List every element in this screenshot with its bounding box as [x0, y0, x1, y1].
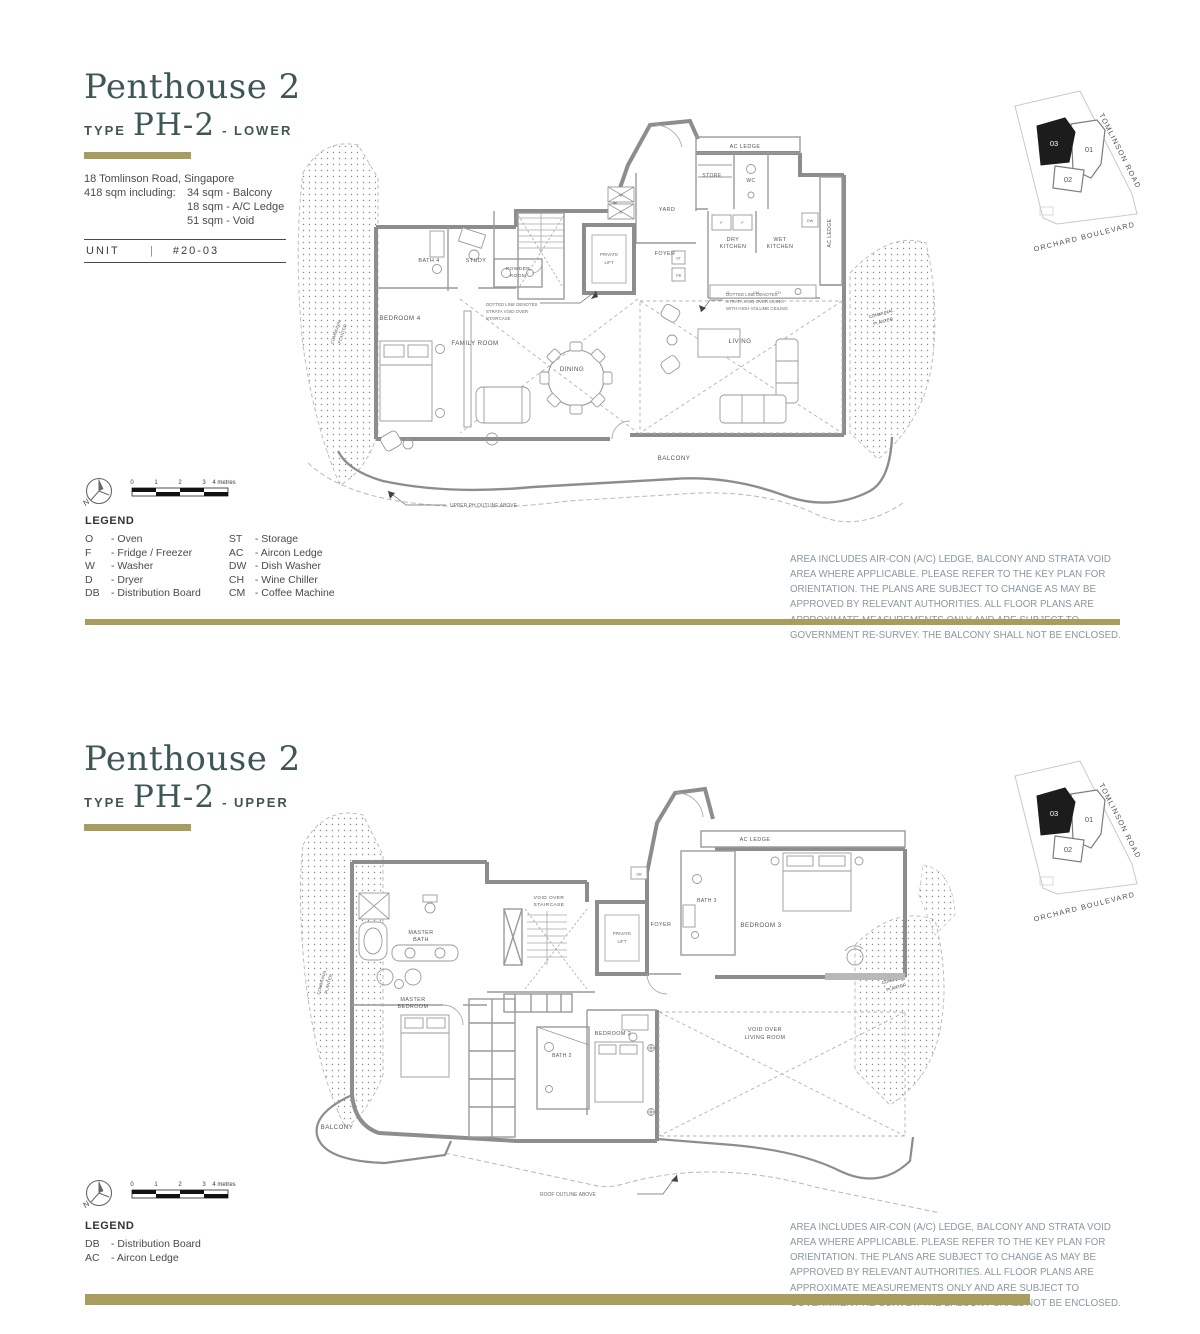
floor-plan-lower: COMMUNAL PLANTER COMMUNAL PLANTER [278, 103, 946, 551]
note-void-staircase: DOTTED LINE DENOTES [486, 302, 538, 307]
room-label-bath4: BATH 4 [418, 258, 439, 264]
legend-abbr: D [85, 574, 111, 588]
area-items: 34 sqm - Balcony 18 sqm - A/C Ledge 51 s… [187, 186, 284, 228]
room-label-bedroom3: BEDROOM 3 [740, 922, 781, 929]
note-void-staircase: STRATA VOID OVER [486, 309, 528, 314]
key-plan-upper: 01 02 03 TOMLINSON ROAD ORCHARD BOULEVAR… [985, 736, 1180, 931]
upper-ph-outline-dashed [308, 463, 903, 522]
scale-tick: 0 [130, 1182, 134, 1188]
room-label-store: STORE [702, 173, 722, 179]
type-row: TYPE PH-2 - LOWER [84, 107, 301, 143]
legend-abbr: CM [229, 587, 255, 601]
scale-tick: 3 [202, 480, 206, 486]
section-divider [85, 619, 1120, 625]
room-label-foyer: FOYER [655, 251, 676, 257]
legend-desc: - Coffee Machine [255, 587, 335, 601]
legend-desc: - Aircon Ledge [255, 547, 323, 561]
floor-plan-upper: COMMUNAL PLANTER COMMUNAL PLANTER [295, 775, 963, 1223]
room-label-balcony: BALCONY [321, 1124, 354, 1131]
unit-02-label: 02 [1064, 175, 1072, 184]
distribution-board-label: DB [636, 873, 642, 877]
legend-col-2: ST- Storage AC- Aircon Ledge DW- Dish Wa… [229, 533, 335, 601]
dryer-label: D [620, 211, 623, 215]
legend-desc: - Dryer [111, 574, 143, 588]
room-label-master-bedroom: MASTER [400, 997, 425, 1003]
room-label-void-living: VOID OVER [748, 1027, 782, 1033]
room-label-study: STUDY [466, 258, 487, 264]
legend-abbr: CH [229, 574, 255, 588]
scale-tick: 3 [202, 1182, 206, 1188]
room-label-void-living: LIVING ROOM [745, 1035, 786, 1041]
legend-upper: LEGEND DB- Distribution Board AC- Aircon… [85, 1220, 201, 1265]
page-title: Penthouse 2 [84, 70, 301, 106]
disclaimer-lower: AREA INCLUDES AIR-CON (A/C) LEDGE, BALCO… [790, 552, 1128, 643]
road-label-orchard: ORCHARD BOULEVARD [1033, 220, 1136, 254]
scale-bar: 0 1 2 3 4 metres [130, 480, 235, 496]
legend-desc: - Storage [255, 533, 298, 547]
scale-tick: 1 [154, 1182, 158, 1188]
type-row: TYPE PH-2 - UPPER [84, 779, 301, 815]
private-lift-label: LIFT [617, 939, 626, 944]
scale-tick: 2 [178, 480, 182, 486]
room-label-ac-ledge: AC LEDGE [740, 837, 771, 843]
legend-desc: - Aircon Ledge [111, 1252, 179, 1266]
key-plan-lower: 01 02 03 TOMLINSON ROAD ORCHARD BOULEVAR… [985, 66, 1180, 261]
scale-tick: 1 [154, 480, 158, 486]
note-upper-ph-outline: UPPER PH OUTLINE ABOVE [450, 503, 518, 509]
legend-abbr: F [85, 547, 111, 561]
note-void-living: STRATA VOID OVER LIVING [726, 299, 784, 304]
legend-lower: LEGEND O- Oven F- Fridge / Freezer W- Wa… [85, 515, 335, 601]
road-label-orchard: ORCHARD BOULEVARD [1033, 890, 1136, 924]
roof-outline-dashed [445, 1153, 940, 1213]
note-void-living: DOTTED LINE DENOTES [726, 292, 778, 297]
area-item: 34 sqm - Balcony [187, 186, 284, 200]
room-label-yard: YARD [659, 207, 675, 213]
legend-desc: - Wine Chiller [255, 574, 318, 588]
legend-abbr: DB [85, 1238, 111, 1252]
unit-label: UNIT [86, 245, 150, 257]
area-item: 51 sqm - Void [187, 214, 284, 228]
gold-accent-bar [84, 824, 191, 831]
upper-fixtures [359, 853, 863, 1116]
legend-desc: - Washer [111, 560, 153, 574]
north-arrow: N [82, 479, 112, 508]
door-swings [443, 793, 703, 1025]
compass-scale-upper: N 0 1 2 3 4 metres [82, 1178, 317, 1210]
room-label-ac-ledge: AC LEDGE [730, 144, 761, 150]
legend-col-1: DB- Distribution Board AC- Aircon Ledge [85, 1238, 201, 1265]
bottom-gold-bar [85, 1294, 1030, 1305]
unit-separator: | [150, 245, 155, 257]
room-label-master-bedroom: BEDROOM [397, 1004, 428, 1010]
upper-info-block: Penthouse 2 TYPE PH-2 - UPPER [84, 742, 301, 831]
room-label-wc: WC [746, 178, 755, 184]
legend-col-1: O- Oven F- Fridge / Freezer W- Washer D-… [85, 533, 201, 601]
scale-end-label: 4 metres [212, 1182, 235, 1188]
room-label-bath2: BATH 2 [552, 1053, 572, 1059]
note-void-staircase: STAIRCASE [486, 316, 511, 321]
staircase [525, 909, 587, 989]
north-arrow: N [82, 1181, 112, 1210]
room-label-balcony: BALCONY [658, 455, 691, 462]
room-label-bedroom4: BEDROOM 4 [379, 315, 420, 322]
north-letter: N [82, 497, 92, 508]
unit-03-label: 03 [1050, 809, 1058, 818]
room-label-family: FAMILY ROOM [451, 340, 498, 347]
room-label-powder: ROOM [510, 273, 527, 279]
room-label-dining: DINING [560, 366, 584, 373]
balcony-railing [338, 437, 892, 503]
area-item: 18 sqm - A/C Ledge [187, 200, 284, 214]
compass-scale-lower: N 0 1 2 3 4 metres [82, 476, 317, 508]
room-label-wet-kitchen: KITCHEN [767, 244, 794, 250]
legend-abbr: ST [229, 533, 255, 547]
legend-abbr: DW [229, 560, 255, 574]
unit-02-label: 02 [1064, 845, 1072, 854]
address-line: 18 Tomlinson Road, Singapore [84, 172, 301, 186]
room-label-void-staircase: STAIRCASE [534, 902, 565, 908]
scale-bar: 0 1 2 3 4 metres [130, 1182, 235, 1198]
legend-title: LEGEND [85, 1220, 201, 1232]
legend-abbr: W [85, 560, 111, 574]
unit-01-label: 01 [1085, 145, 1093, 154]
road-label-tomlinson: TOMLINSON ROAD [1097, 112, 1143, 191]
communal-planter-right: COMMUNAL PLANTER [850, 240, 935, 459]
area-row: 418 sqm including: 34 sqm - Balcony 18 s… [84, 186, 301, 228]
washer-label: W [619, 194, 623, 198]
room-label-master-bath: BATH [413, 937, 429, 943]
legend-desc: - Dish Washer [255, 560, 321, 574]
legend-title: LEGEND [85, 515, 335, 527]
room-label-void-staircase: VOID OVER [534, 895, 565, 901]
type-variant: - UPPER [222, 795, 289, 810]
unit-01-label: 01 [1085, 815, 1093, 824]
page-title: Penthouse 2 [84, 742, 301, 778]
storage-label: ST [676, 257, 682, 261]
north-letter: N [82, 1199, 92, 1210]
room-label-wet-kitchen: WET [773, 237, 787, 243]
upper-notes: ROOF OUTLINE ABOVE [540, 1175, 678, 1198]
room-label-dry-kitchen: KITCHEN [720, 244, 747, 250]
type-code: PH-2 [133, 779, 215, 815]
private-lift-label: PRIVATE [613, 931, 631, 936]
road-label-tomlinson: TOMLINSON ROAD [1097, 782, 1143, 861]
legend-desc: - Fridge / Freezer [111, 547, 192, 561]
type-label: TYPE [84, 123, 126, 138]
void-edge-railing [657, 1137, 913, 1179]
dishwasher-label: DW [807, 219, 814, 223]
address-block: 18 Tomlinson Road, Singapore 418 sqm inc… [84, 172, 301, 228]
type-label: TYPE [84, 795, 126, 810]
unit-value: #20-03 [173, 245, 219, 257]
legend-abbr: DB [85, 587, 111, 601]
legend-abbr: AC [229, 547, 255, 561]
legend-desc: - Oven [111, 533, 143, 547]
room-label-dry-kitchen: DRY [727, 237, 740, 243]
room-label-master-bath: MASTER [408, 930, 433, 936]
room-label-ac-ledge-right: AC LEDGE [827, 218, 833, 247]
legend-desc: - Distribution Board [111, 1238, 201, 1252]
unit-number-box: UNIT | #20-03 [84, 239, 286, 263]
legend-abbr: O [85, 533, 111, 547]
room-label-foyer: FOYER [651, 922, 672, 928]
unit-03-label: 03 [1050, 139, 1058, 148]
legend-abbr: AC [85, 1252, 111, 1266]
private-lift-label: PRIVATE [600, 252, 618, 257]
scale-tick: 2 [178, 1182, 182, 1188]
private-lift-box: PRIVATE LIFT [597, 902, 647, 974]
room-label-bedroom2: BEDROOM 2 [595, 1031, 631, 1037]
gold-accent-bar [84, 152, 191, 159]
room-label-bath3: BATH 3 [697, 898, 717, 904]
legend-desc: - Distribution Board [111, 587, 201, 601]
communal-planter-left: COMMUNAL PLANTER [298, 144, 378, 485]
brochure-page: Penthouse 2 TYPE PH-2 - LOWER 18 Tomlins… [0, 0, 1200, 1334]
lower-info-block: Penthouse 2 TYPE PH-2 - LOWER 18 Tomlins… [84, 70, 301, 263]
room-label-powder: POWDER [506, 266, 530, 272]
area-total: 418 sqm including: [84, 186, 187, 228]
scale-end-label: 4 metres [212, 480, 235, 486]
private-lift-label: LIFT [604, 260, 613, 265]
note-void-living: WITH HIGH VOLUME CEILING [726, 306, 789, 311]
room-label-living: LIVING [729, 338, 752, 345]
scale-tick: 0 [130, 480, 134, 486]
distribution-board-label: DB [676, 274, 682, 278]
note-roof-outline: ROOF OUTLINE ABOVE [540, 1192, 597, 1198]
private-lift-box: PRIVATE LIFT [584, 225, 634, 293]
type-code: PH-2 [133, 107, 215, 143]
